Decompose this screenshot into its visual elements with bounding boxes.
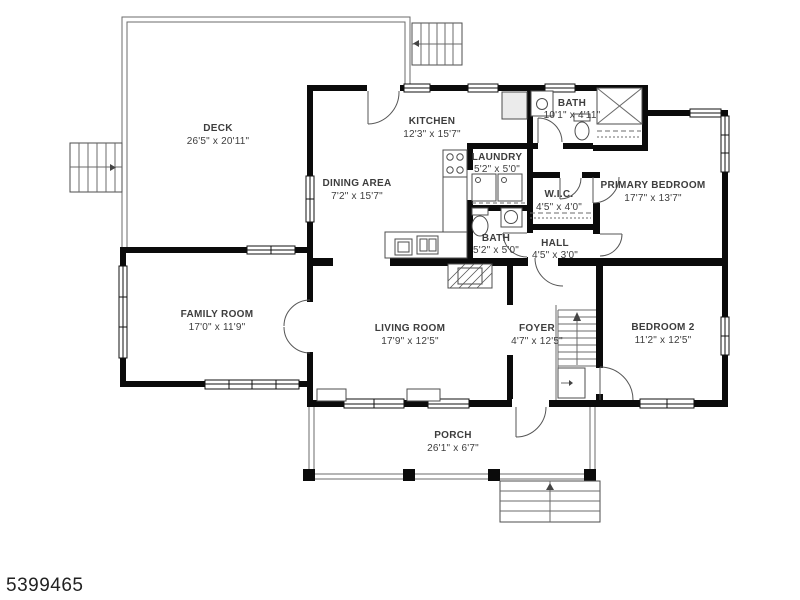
primary-bedroom-door bbox=[600, 234, 622, 256]
room-dims-bath-upper: 10'1" x 4'11" bbox=[544, 110, 601, 121]
room-label-primary: PRIMARY BEDROOM bbox=[600, 180, 705, 191]
family-room-double-door bbox=[284, 300, 310, 353]
room-label-wic: W.I.C. bbox=[544, 189, 573, 200]
bath-lower-fixtures bbox=[472, 208, 522, 236]
room-label-kitchen: KITCHEN bbox=[409, 116, 456, 127]
room-label-bath-lower: BATH bbox=[482, 233, 510, 244]
room-dims-laundry: 5'2" x 5'0" bbox=[474, 164, 520, 175]
room-dims-dining: 7'2" x 15'7" bbox=[331, 191, 383, 202]
room-dims-wic: 4'5" x 4'0" bbox=[536, 202, 582, 213]
porch-stairs bbox=[500, 481, 600, 522]
room-label-porch: PORCH bbox=[434, 430, 472, 441]
stove bbox=[443, 150, 467, 177]
wic-closet-rod bbox=[530, 213, 591, 218]
room-label-living: LIVING ROOM bbox=[375, 323, 446, 334]
room-dims-living: 17'9" x 12'5" bbox=[381, 336, 439, 347]
room-label-laundry: LAUNDRY bbox=[472, 152, 523, 163]
deck-stairs-top bbox=[412, 23, 462, 65]
room-dims-foyer: 4'7" x 12'5" bbox=[511, 336, 563, 347]
bedroom2-door bbox=[600, 367, 633, 400]
laundry-fixtures bbox=[472, 174, 527, 203]
kitchen-deck-door bbox=[368, 91, 399, 124]
room-dims-deck: 26'5" x 20'11" bbox=[187, 136, 250, 147]
room-dims-primary: 17'7" x 13'7" bbox=[624, 193, 682, 204]
foyer-stairs bbox=[556, 305, 596, 400]
room-dims-bedroom2: 11'2" x 12'5" bbox=[635, 335, 692, 346]
toilet-tank bbox=[472, 208, 488, 215]
room-label-bath-upper: BATH bbox=[558, 98, 586, 109]
floor-plan-page: DECK 26'5" x 20'11" KITCHEN 12'3" x 15'7… bbox=[0, 0, 800, 600]
toilet-bowl bbox=[575, 122, 589, 140]
floor-plan-image: DECK 26'5" x 20'11" KITCHEN 12'3" x 15'7… bbox=[0, 0, 800, 600]
front-door bbox=[516, 407, 546, 437]
room-dims-bath-lower: 5'2" x 5'0" bbox=[473, 245, 519, 256]
deck-railing bbox=[122, 17, 410, 247]
room-label-family: FAMILY ROOM bbox=[181, 309, 254, 320]
room-label-hall: HALL bbox=[541, 238, 569, 249]
room-dims-family: 17'0" x 11'9" bbox=[189, 322, 246, 333]
room-label-dining: DINING AREA bbox=[322, 178, 391, 189]
deck-stairs-left bbox=[70, 143, 122, 192]
bath-upper-door bbox=[538, 118, 562, 143]
room-dims-hall: 4'5" x 3'0" bbox=[532, 250, 578, 261]
room-dims-kitchen: 12'3" x 15'7" bbox=[403, 129, 461, 140]
washer bbox=[472, 174, 496, 201]
fireplace bbox=[448, 264, 492, 288]
room-label-deck: DECK bbox=[203, 123, 233, 134]
room-dims-porch: 26'1" x 6'7" bbox=[427, 443, 479, 454]
dryer bbox=[498, 174, 522, 201]
listing-id: 5399465 bbox=[6, 575, 83, 597]
room-label-foyer: FOYER bbox=[519, 323, 555, 334]
room-label-bedroom2: BEDROOM 2 bbox=[631, 322, 694, 333]
refrigerator bbox=[502, 92, 527, 119]
